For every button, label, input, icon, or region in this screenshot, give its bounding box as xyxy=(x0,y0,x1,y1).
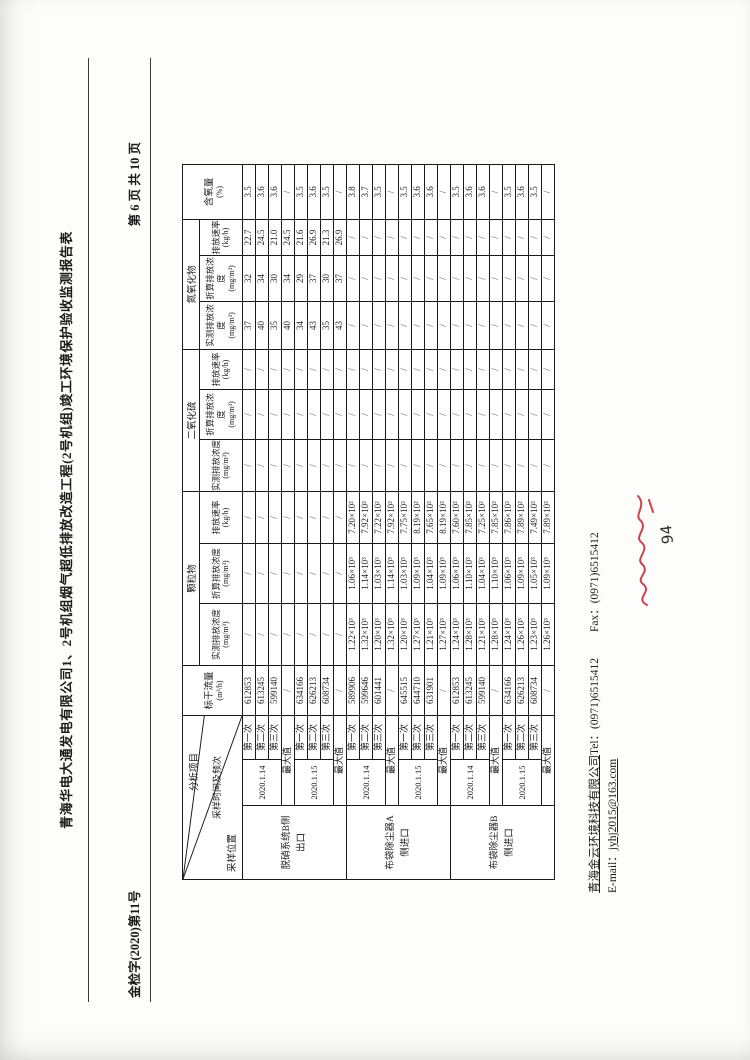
value-cell: / xyxy=(243,439,256,491)
table-header-row-groups: 分析项目 采样时间及频次 采样位置 标干流量 (m³/h) 颗粒物 二氧化硫 氮… xyxy=(183,164,200,879)
date-cell: 2020.1.14 xyxy=(243,760,282,806)
value-cell: 40 xyxy=(256,301,269,349)
frequency-cell: 第二次 xyxy=(412,715,425,759)
value-cell: / xyxy=(412,349,425,389)
value-cell: / xyxy=(529,255,542,301)
max-label-cell: 最大值 xyxy=(542,715,555,805)
value-cell: 3.5 xyxy=(373,164,386,219)
header-flow: 标干流量 (m³/h) xyxy=(183,665,243,715)
value-cell: / xyxy=(438,389,451,439)
value-cell: / xyxy=(282,349,295,389)
value-cell: 3.5 xyxy=(295,164,308,219)
value-cell: 1.20×10³ xyxy=(399,603,412,665)
value-cell: 3.5 xyxy=(451,164,464,219)
value-cell: / xyxy=(334,491,347,543)
table-row-max: 最大值///////433726.9/ xyxy=(334,164,347,879)
value-cell: 1.06×10³ xyxy=(451,543,464,603)
value-cell: / xyxy=(412,255,425,301)
value-cell: / xyxy=(412,439,425,491)
value-cell: 1.09×10³ xyxy=(412,543,425,603)
value-cell: / xyxy=(464,439,477,491)
header-pm-rate: 排放速率(kg/h) xyxy=(200,491,243,543)
value-cell: 34 xyxy=(256,255,269,301)
header-pm-converted: 折算排放浓度(mg/m³) xyxy=(200,543,243,603)
diagonal-label-sampling-time: 采样时间及频次 xyxy=(210,756,223,819)
location-cell: 脱硝系统B侧出口 xyxy=(243,806,347,880)
value-cell: / xyxy=(347,255,360,301)
value-cell: / xyxy=(490,349,503,389)
value-cell: 1.21×10³ xyxy=(425,603,438,665)
value-cell: 634166 xyxy=(503,665,516,715)
value-cell: 612853 xyxy=(243,665,256,715)
frequency-cell: 第二次 xyxy=(464,715,477,759)
value-cell: / xyxy=(425,301,438,349)
value-cell: / xyxy=(425,255,438,301)
value-cell: 3.5 xyxy=(399,164,412,219)
value-cell: / xyxy=(477,219,490,255)
value-cell: / xyxy=(256,349,269,389)
value-cell: / xyxy=(295,543,308,603)
value-cell: / xyxy=(516,255,529,301)
frequency-cell: 第二次 xyxy=(256,715,269,759)
value-cell: / xyxy=(386,301,399,349)
value-cell: 3.8 xyxy=(347,164,360,219)
page-indicator: 第 6 页 共 10 页 xyxy=(124,142,143,226)
value-cell: / xyxy=(490,439,503,491)
value-cell: 1.10×10³ xyxy=(490,543,503,603)
value-cell: 599646 xyxy=(360,665,373,715)
value-cell: / xyxy=(308,389,321,439)
value-cell: / xyxy=(269,349,282,389)
header-flow-label: 标干流量 xyxy=(205,671,215,709)
value-cell: / xyxy=(438,301,451,349)
frequency-cell: 第一次 xyxy=(347,715,360,759)
value-cell: / xyxy=(516,219,529,255)
value-cell: / xyxy=(425,439,438,491)
value-cell: / xyxy=(243,389,256,439)
value-cell: / xyxy=(503,439,516,491)
value-cell: 3.5 xyxy=(321,164,334,219)
value-cell: / xyxy=(425,219,438,255)
value-cell: 26.9 xyxy=(308,219,321,255)
value-cell: 8.19×10² xyxy=(438,491,451,543)
value-cell: / xyxy=(451,219,464,255)
value-cell: 43 xyxy=(334,301,347,349)
value-cell: / xyxy=(490,389,503,439)
value-cell: / xyxy=(373,349,386,389)
value-cell: 1.24×10³ xyxy=(451,603,464,665)
header-group-particulate: 颗粒物 xyxy=(183,491,200,665)
value-cell: / xyxy=(347,389,360,439)
header-rule-top xyxy=(88,58,89,1002)
value-cell: 626213 xyxy=(516,665,529,715)
value-cell: 1.06×10³ xyxy=(347,543,360,603)
value-cell: 3.7 xyxy=(360,164,373,219)
frequency-cell: 第三次 xyxy=(321,715,334,759)
value-cell: 7.49×10² xyxy=(529,491,542,543)
value-cell: / xyxy=(542,301,555,349)
value-cell: / xyxy=(386,219,399,255)
value-cell: 37 xyxy=(243,301,256,349)
max-label-cell: 最大值 xyxy=(386,715,399,805)
table-body: 脱硝系统B侧出口2020.1.14第一次612853//////373222.7… xyxy=(243,164,555,879)
value-cell: / xyxy=(451,389,464,439)
header-flow-unit: (m³/h) xyxy=(215,666,224,715)
value-cell: 1.05×10³ xyxy=(529,543,542,603)
value-cell: / xyxy=(321,439,334,491)
date-cell: 2020.1.15 xyxy=(295,760,334,806)
diagonal-header-cell: 分析项目 采样时间及频次 采样位置 xyxy=(183,715,243,879)
value-cell: 7.60×10² xyxy=(451,491,464,543)
tel-number: (0971)6515412 xyxy=(589,658,601,729)
value-cell: 631901 xyxy=(425,665,438,715)
value-cell: / xyxy=(542,164,555,219)
value-cell: / xyxy=(438,439,451,491)
header-oxygen: 含氧量 (%) xyxy=(183,164,243,219)
value-cell: / xyxy=(321,543,334,603)
value-cell: 612853 xyxy=(451,665,464,715)
value-cell: 3.6 xyxy=(464,164,477,219)
fax-label: Fax： xyxy=(589,603,601,632)
value-cell: 1.21×10³ xyxy=(477,603,490,665)
value-cell: 3.6 xyxy=(425,164,438,219)
value-cell: 1.24×10³ xyxy=(503,603,516,665)
frequency-cell: 第三次 xyxy=(425,715,438,759)
table-row-max: 最大值/1.28×10³1.10×10³7.85×10²/////// xyxy=(490,164,503,879)
value-cell: / xyxy=(334,389,347,439)
value-cell: / xyxy=(399,255,412,301)
doc-number: 金检字(2020)第11号 xyxy=(124,890,143,998)
value-cell: / xyxy=(542,349,555,389)
value-cell: / xyxy=(516,439,529,491)
value-cell: / xyxy=(243,349,256,389)
red-pen-mark xyxy=(630,488,658,608)
value-cell: 1.06×10³ xyxy=(503,543,516,603)
value-cell: / xyxy=(308,603,321,665)
value-cell: 30 xyxy=(321,255,334,301)
value-cell: 613245 xyxy=(464,665,477,715)
value-cell: / xyxy=(503,219,516,255)
value-cell: 1.27×10³ xyxy=(438,603,451,665)
date-cell: 2020.1.14 xyxy=(347,760,386,806)
value-cell: 613245 xyxy=(256,665,269,715)
value-cell: 1.09×10³ xyxy=(438,543,451,603)
value-cell: / xyxy=(516,349,529,389)
table-row: 2020.1.15第一次634166//////342921.63.5 xyxy=(295,164,308,879)
value-cell: 1.09×10³ xyxy=(542,543,555,603)
value-cell: 3.6 xyxy=(269,164,282,219)
value-cell: 645515 xyxy=(399,665,412,715)
value-cell: 608734 xyxy=(529,665,542,715)
value-cell: 3.6 xyxy=(308,164,321,219)
value-cell: 7.85×10² xyxy=(490,491,503,543)
footer-line-email: E-mail：jyhj2015@163.com xyxy=(604,532,622,893)
location-cell: 布袋除尘器A侧进口 xyxy=(347,806,451,880)
value-cell: / xyxy=(464,349,477,389)
value-cell: 43 xyxy=(308,301,321,349)
value-cell: / xyxy=(334,439,347,491)
value-cell: / xyxy=(295,389,308,439)
diagonal-label-sampling-location: 采样位置 xyxy=(224,834,238,872)
value-cell: / xyxy=(529,439,542,491)
value-cell: / xyxy=(438,219,451,255)
value-cell: 21.6 xyxy=(295,219,308,255)
value-cell: / xyxy=(438,665,451,715)
value-cell: / xyxy=(412,301,425,349)
value-cell: / xyxy=(386,439,399,491)
value-cell: / xyxy=(477,349,490,389)
value-cell: 1.09×10³ xyxy=(516,543,529,603)
header-oxygen-label: 含氧量 xyxy=(205,178,215,207)
table-row-max: 最大值/1.32×10³1.14×10³7.92×10²/////// xyxy=(386,164,399,879)
value-cell: / xyxy=(308,543,321,603)
value-cell: / xyxy=(464,255,477,301)
value-cell: / xyxy=(386,164,399,219)
value-cell: / xyxy=(282,665,295,715)
value-cell: / xyxy=(295,439,308,491)
value-cell: / xyxy=(308,491,321,543)
value-cell: / xyxy=(451,255,464,301)
header-so2-measured: 实测排放浓度(mg/m³) xyxy=(200,439,243,491)
value-cell: 1.10×10³ xyxy=(464,543,477,603)
frequency-cell: 第一次 xyxy=(399,715,412,759)
header-rule-bottom xyxy=(150,58,151,1002)
frequency-cell: 第二次 xyxy=(308,715,321,759)
value-cell: 1.03×10³ xyxy=(399,543,412,603)
value-cell: / xyxy=(269,491,282,543)
value-cell: / xyxy=(256,389,269,439)
value-cell: / xyxy=(464,389,477,439)
value-cell: / xyxy=(516,301,529,349)
value-cell: / xyxy=(321,389,334,439)
value-cell: 24.5 xyxy=(256,219,269,255)
value-cell: / xyxy=(256,439,269,491)
table-row: 脱硝系统B侧出口2020.1.14第一次612853//////373222.7… xyxy=(243,164,256,879)
frequency-cell: 第三次 xyxy=(373,715,386,759)
value-cell: / xyxy=(542,439,555,491)
value-cell: / xyxy=(386,389,399,439)
header-pm-measured: 实测排放浓度(mg/m³) xyxy=(200,603,243,665)
value-cell: / xyxy=(438,255,451,301)
value-cell: / xyxy=(269,389,282,439)
value-cell: / xyxy=(386,255,399,301)
value-cell: 35 xyxy=(321,301,334,349)
value-cell: 1.03×10³ xyxy=(373,543,386,603)
value-cell: / xyxy=(360,219,373,255)
value-cell: / xyxy=(490,301,503,349)
value-cell: / xyxy=(334,164,347,219)
tel-label: Tel： xyxy=(589,729,601,755)
header-oxygen-unit: (%) xyxy=(215,165,224,219)
value-cell: 1.26×10³ xyxy=(542,603,555,665)
header-nox-rate: 排放速率(kg/h) xyxy=(200,219,243,255)
value-cell: / xyxy=(386,665,399,715)
value-cell: / xyxy=(516,389,529,439)
value-cell: 1.14×10³ xyxy=(386,543,399,603)
value-cell: / xyxy=(334,349,347,389)
value-cell: / xyxy=(269,543,282,603)
value-cell: / xyxy=(542,665,555,715)
value-cell: / xyxy=(334,543,347,603)
value-cell: / xyxy=(295,603,308,665)
value-cell: / xyxy=(269,603,282,665)
value-cell: 7.75×10² xyxy=(399,491,412,543)
value-cell: / xyxy=(438,349,451,389)
header-nox-measured: 实测排放浓度(mg/m³) xyxy=(200,301,243,349)
header-group-nox: 氮氧化物 xyxy=(183,219,200,349)
table-row: 2020.1.15第一次6341661.24×10³1.06×10³7.86×1… xyxy=(503,164,516,879)
table-row: 2020.1.15第一次6455151.20×10³1.03×10³7.75×1… xyxy=(399,164,412,879)
frequency-cell: 第三次 xyxy=(269,715,282,759)
value-cell: 1.27×10³ xyxy=(412,603,425,665)
header-so2-converted: 折算排放浓度(mg/m³) xyxy=(200,389,243,439)
value-cell: / xyxy=(373,301,386,349)
value-cell: / xyxy=(282,164,295,219)
value-cell: / xyxy=(399,219,412,255)
value-cell: 3.5 xyxy=(529,164,542,219)
table-row: 布袋除尘器A侧进口2020.1.14第一次5899061.22×10³1.06×… xyxy=(347,164,360,879)
value-cell: 3.6 xyxy=(477,164,490,219)
frequency-cell: 第一次 xyxy=(451,715,464,759)
handwritten-page-number: 94 xyxy=(657,524,677,545)
frequency-cell: 第一次 xyxy=(295,715,308,759)
header-so2-rate: 排放速率(kg/h) xyxy=(200,349,243,389)
frequency-cell: 第一次 xyxy=(243,715,256,759)
value-cell: / xyxy=(373,255,386,301)
value-cell: 626213 xyxy=(308,665,321,715)
value-cell: / xyxy=(438,164,451,219)
date-cell: 2020.1.14 xyxy=(451,760,490,806)
value-cell: 24.5 xyxy=(282,219,295,255)
value-cell: 7.89×10² xyxy=(516,491,529,543)
value-cell: 1.22×10³ xyxy=(347,603,360,665)
value-cell: 35 xyxy=(269,301,282,349)
value-cell: 7.86×10² xyxy=(503,491,516,543)
frequency-cell: 第三次 xyxy=(477,715,490,759)
value-cell: / xyxy=(282,543,295,603)
value-cell: / xyxy=(373,219,386,255)
value-cell: / xyxy=(412,219,425,255)
value-cell: / xyxy=(399,389,412,439)
footer-line-contact: 青海金云环境科技有限公司Tel：(0971)6515412Fax：(0971)6… xyxy=(586,532,604,893)
value-cell: / xyxy=(321,491,334,543)
value-cell: 7.92×10² xyxy=(386,491,399,543)
value-cell: / xyxy=(503,255,516,301)
value-cell: 608734 xyxy=(321,665,334,715)
value-cell: / xyxy=(490,255,503,301)
value-cell: 30 xyxy=(269,255,282,301)
value-cell: / xyxy=(360,439,373,491)
value-cell: / xyxy=(477,255,490,301)
value-cell: / xyxy=(282,389,295,439)
value-cell: / xyxy=(347,349,360,389)
value-cell: / xyxy=(360,255,373,301)
value-cell: / xyxy=(425,389,438,439)
value-cell: / xyxy=(542,389,555,439)
value-cell: / xyxy=(243,603,256,665)
value-cell: 34 xyxy=(282,255,295,301)
value-cell: 3.5 xyxy=(243,164,256,219)
value-cell: / xyxy=(308,439,321,491)
value-cell: / xyxy=(256,603,269,665)
value-cell: 1.23×10³ xyxy=(529,603,542,665)
email-address: jyhj2015@163.com xyxy=(607,759,619,850)
max-label-cell: 最大值 xyxy=(490,715,503,805)
doc-meta-line: 金检字(2020)第11号 第 6 页 共 10 页 xyxy=(124,142,143,998)
value-cell: 589906 xyxy=(347,665,360,715)
value-cell: / xyxy=(503,389,516,439)
value-cell: 3.6 xyxy=(412,164,425,219)
value-cell: 3.5 xyxy=(503,164,516,219)
lab-footer: 青海金云环境科技有限公司Tel：(0971)6515412Fax：(0971)6… xyxy=(586,532,623,893)
value-cell: / xyxy=(256,543,269,603)
table-row: 布袋除尘器B侧进口2020.1.14第一次6128531.24×10³1.06×… xyxy=(451,164,464,879)
value-cell: / xyxy=(425,349,438,389)
value-cell: 7.89×10² xyxy=(542,491,555,543)
value-cell: / xyxy=(542,255,555,301)
value-cell: / xyxy=(529,219,542,255)
value-cell: 3.6 xyxy=(516,164,529,219)
lab-company-name: 青海金云环境科技有限公司 xyxy=(589,755,601,893)
max-label-cell: 最大值 xyxy=(334,715,347,805)
value-cell: / xyxy=(282,491,295,543)
value-cell: / xyxy=(334,665,347,715)
location-cell: 布袋除尘器B侧进口 xyxy=(451,806,555,880)
value-cell: 7.22×10² xyxy=(373,491,386,543)
value-cell: / xyxy=(490,665,503,715)
value-cell: 7.25×10² xyxy=(477,491,490,543)
value-cell: 644710 xyxy=(412,665,425,715)
value-cell: / xyxy=(308,349,321,389)
value-cell: 601441 xyxy=(373,665,386,715)
header-group-so2: 二氧化硫 xyxy=(183,349,200,491)
value-cell: 3.6 xyxy=(256,164,269,219)
fax-number: (0971)6515412 xyxy=(589,532,601,603)
value-cell: 1.32×10³ xyxy=(386,603,399,665)
scanned-report-page: 青海华电大通发电有限公司1、2号机组烟气超低排放改造工程(2号机组)竣工环境保护… xyxy=(0,0,750,1060)
value-cell: / xyxy=(321,349,334,389)
value-cell: / xyxy=(295,491,308,543)
diagonal-label-analysis-item: 分析项目 xyxy=(186,753,200,791)
value-cell: 34 xyxy=(295,301,308,349)
value-cell: / xyxy=(282,603,295,665)
value-cell: / xyxy=(282,439,295,491)
header-nox-converted: 折算排放浓度(mg/m³) xyxy=(200,255,243,301)
value-cell: / xyxy=(451,439,464,491)
frequency-cell: 第二次 xyxy=(516,715,529,759)
value-cell: / xyxy=(503,301,516,349)
value-cell: 29 xyxy=(295,255,308,301)
value-cell: 7.65×10² xyxy=(425,491,438,543)
value-cell: / xyxy=(542,219,555,255)
value-cell: 1.28×10³ xyxy=(490,603,503,665)
value-cell: / xyxy=(243,543,256,603)
value-cell: / xyxy=(399,439,412,491)
value-cell: / xyxy=(451,349,464,389)
email-label: E-mail： xyxy=(607,850,619,893)
value-cell: / xyxy=(373,389,386,439)
value-cell: / xyxy=(334,603,347,665)
value-cell: / xyxy=(477,439,490,491)
value-cell: / xyxy=(243,491,256,543)
value-cell: 7.85×10² xyxy=(464,491,477,543)
value-cell: / xyxy=(321,603,334,665)
value-cell: / xyxy=(269,439,282,491)
value-cell: 1.14×10³ xyxy=(360,543,373,603)
value-cell: / xyxy=(256,491,269,543)
value-cell: 1.28×10³ xyxy=(464,603,477,665)
max-label-cell: 最大值 xyxy=(282,715,295,805)
